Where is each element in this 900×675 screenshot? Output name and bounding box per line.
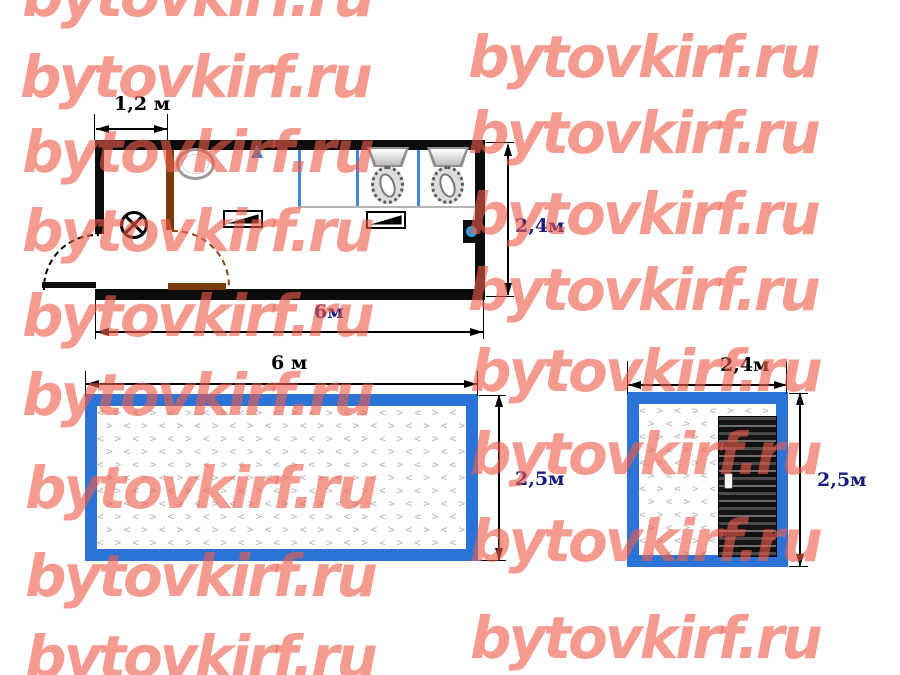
cladding-pattern: <><><><><><><><><><><>><><><><><><><><><… xyxy=(97,406,466,549)
dim-label-plan-depth: 2,4м xyxy=(515,215,565,237)
dimension-line xyxy=(96,331,483,333)
entrance-door xyxy=(718,416,777,557)
watermark-text: bytovkirf.ru xyxy=(468,99,818,167)
dim-arrow-left xyxy=(96,328,109,336)
dim-arrow-right xyxy=(470,328,483,336)
bench-wedge xyxy=(226,213,260,225)
dim-arrow-right xyxy=(774,381,787,389)
dim-arrow-up xyxy=(796,392,804,405)
toilet-bowl xyxy=(431,166,464,204)
plan-wall-top xyxy=(95,140,485,150)
extension-line xyxy=(167,114,168,149)
stall-partition-line xyxy=(298,150,301,208)
dimension-line xyxy=(507,145,509,295)
dim-arrow-left xyxy=(628,381,641,389)
cistern-lid xyxy=(370,149,406,165)
dimension-line xyxy=(498,396,500,560)
watermark-text: bytovkirf.ru xyxy=(468,180,818,248)
toilet-cistern xyxy=(367,147,409,167)
dim-arrow-right xyxy=(154,125,167,133)
dim-arrow-left xyxy=(86,380,99,388)
wash-basin-icon xyxy=(176,148,215,180)
ceiling-lamp-icon xyxy=(120,211,148,239)
water-heater-dot xyxy=(466,226,477,237)
toilet-cistern xyxy=(427,147,469,167)
dim-arrow-up xyxy=(504,143,512,156)
interior-door-swing-arc xyxy=(172,230,230,288)
plan-wall-bottom xyxy=(95,289,485,300)
dim-label-plan-length: 6м xyxy=(314,301,344,323)
dim-arrow-down xyxy=(504,283,512,296)
stall-partition-line xyxy=(356,150,359,208)
dimension-line xyxy=(86,383,477,385)
dim-label-side-width: 2,4м xyxy=(720,354,770,376)
bench-icon xyxy=(223,210,263,228)
dim-arrow-down xyxy=(495,548,503,561)
plan-wall-left xyxy=(95,150,104,234)
watermark-text: bytovkirf.ru xyxy=(20,43,370,111)
extension-line xyxy=(477,371,478,396)
stall-front-line xyxy=(298,206,475,208)
dim-label-front-height: 2,5м xyxy=(515,468,565,490)
entry-partition-wall xyxy=(166,150,174,230)
watermark-text: bytovkirf.ru xyxy=(468,23,818,91)
watermark-text: bytovkirf.ru xyxy=(470,604,820,672)
dim-arrow-down xyxy=(796,554,804,567)
toilet-bowl-inner xyxy=(437,171,459,199)
interior-door-leaf xyxy=(168,283,226,290)
toilet-bowl xyxy=(371,166,404,204)
basin-inner xyxy=(182,154,209,174)
dimension-line xyxy=(628,384,787,386)
dim-label-front-length: 6 м xyxy=(271,352,307,374)
toilet-bowl-inner xyxy=(377,171,399,199)
extension-line xyxy=(786,361,787,394)
bench-wedge xyxy=(369,214,403,226)
watermark-text: bytovkirf.ru xyxy=(22,0,372,30)
stall-partition-line xyxy=(417,150,420,208)
dim-arrow-left xyxy=(96,125,109,133)
watermark-text: bytovkirf.ru xyxy=(468,256,818,324)
dim-label-side-height: 2,5м xyxy=(817,469,867,491)
cabin-technical-drawing: 1,2 м 2,4м 6м <><><><><><><><><><><>><><… xyxy=(0,0,900,675)
extension-line xyxy=(483,300,484,339)
door-handle xyxy=(724,473,733,489)
exterior-door-leaf xyxy=(42,282,96,288)
dim-arrow-right xyxy=(464,380,477,388)
extension-line xyxy=(486,296,514,297)
cistern-lid xyxy=(430,149,466,165)
dim-label-entry-width: 1,2 м xyxy=(114,93,170,115)
watermark-text: bytovkirf.ru xyxy=(25,623,375,675)
bench-icon xyxy=(366,211,406,229)
extension-line xyxy=(94,114,95,140)
extension-line xyxy=(627,361,628,394)
dim-arrow-up xyxy=(495,394,503,407)
dimension-line xyxy=(799,394,801,566)
